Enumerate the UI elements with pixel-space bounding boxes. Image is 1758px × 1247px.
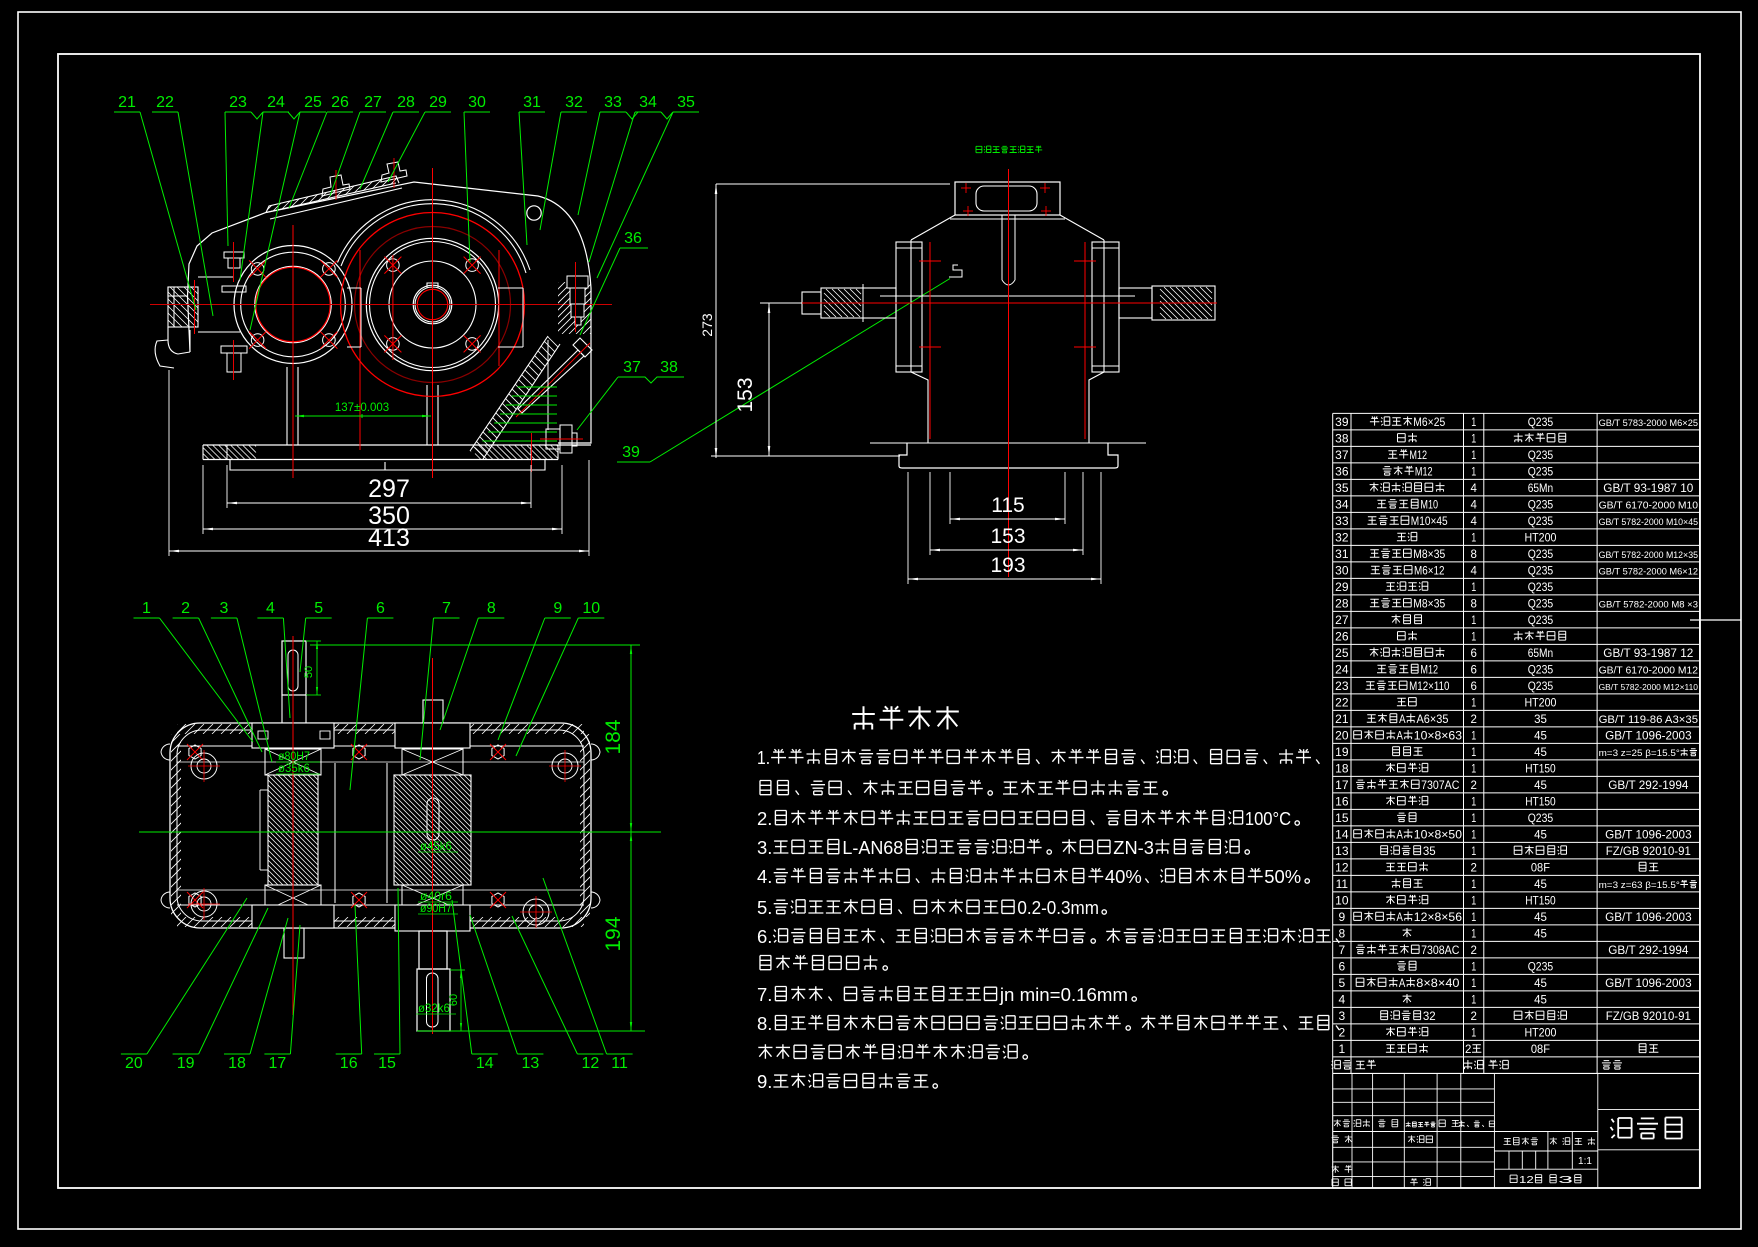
svg-text:29: 29: [1335, 580, 1349, 594]
svg-text:08F: 08F: [1531, 861, 1550, 874]
svg-text:GB/T 6170-2000 M10: GB/T 6170-2000 M10: [1599, 499, 1699, 511]
svg-text:Q235: Q235: [1528, 614, 1554, 627]
svg-text:Q235: Q235: [1528, 515, 1554, 528]
svg-text:193: 193: [990, 554, 1025, 577]
svg-text:GB/T 5782-2000 M8 ×3: GB/T 5782-2000 M8 ×3: [1599, 599, 1698, 609]
svg-text:28: 28: [397, 94, 415, 111]
svg-text:22: 22: [156, 94, 174, 111]
svg-text:26: 26: [331, 94, 349, 111]
svg-text:Q235: Q235: [1528, 680, 1554, 693]
svg-text:100°C: 100°C: [1245, 808, 1291, 829]
svg-text:14: 14: [1335, 827, 1349, 841]
svg-text:32: 32: [1423, 1010, 1436, 1023]
svg-text:3.: 3.: [757, 837, 772, 858]
svg-text:1: 1: [1471, 1026, 1476, 1039]
svg-text:L-AN68: L-AN68: [842, 837, 903, 858]
svg-text:3: 3: [1558, 1174, 1573, 1186]
svg-text:Q235: Q235: [1528, 465, 1554, 478]
svg-text:45: 45: [1534, 993, 1547, 1006]
svg-text:1: 1: [1471, 795, 1476, 808]
svg-text:3: 3: [1339, 1009, 1346, 1023]
svg-text:HT200: HT200: [1525, 696, 1557, 709]
svg-text:1: 1: [1471, 729, 1476, 742]
svg-text:A: A: [1399, 713, 1406, 726]
svg-text:1: 1: [1471, 977, 1476, 990]
svg-text:M12×110: M12×110: [1409, 680, 1449, 693]
svg-text:0.2-0.3mm: 0.2-0.3mm: [1017, 897, 1099, 918]
svg-text:2: 2: [1471, 713, 1477, 726]
svg-text:1: 1: [142, 600, 151, 617]
svg-text:2: 2: [1339, 1025, 1346, 1039]
svg-text:184: 184: [602, 719, 625, 754]
svg-text:1:1: 1:1: [1578, 1156, 1592, 1167]
svg-text:GB/T 5782-2000 M12×110: GB/T 5782-2000 M12×110: [1599, 682, 1699, 692]
svg-text:8: 8: [487, 600, 496, 617]
svg-text:ø35k6: ø35k6: [278, 762, 310, 775]
svg-text:297: 297: [368, 475, 410, 503]
svg-text:35: 35: [1534, 713, 1547, 726]
svg-text:1: 1: [1471, 911, 1476, 924]
svg-text:30: 30: [468, 94, 486, 111]
svg-text:7307AC: 7307AC: [1421, 779, 1459, 792]
svg-text:45: 45: [1534, 911, 1547, 924]
svg-text:1: 1: [1339, 1042, 1346, 1056]
svg-text:65Mn: 65Mn: [1528, 482, 1554, 495]
svg-text:10: 10: [1335, 893, 1349, 907]
svg-text:1: 1: [1471, 696, 1476, 709]
svg-text:194: 194: [602, 916, 625, 951]
svg-text:5: 5: [314, 600, 323, 617]
svg-text:28: 28: [1335, 596, 1349, 610]
svg-text:08F: 08F: [1531, 1043, 1550, 1056]
svg-text:45: 45: [1534, 729, 1547, 742]
svg-text:115: 115: [991, 494, 1024, 517]
svg-text:6: 6: [376, 600, 385, 617]
svg-text:413: 413: [368, 524, 410, 552]
svg-text:A6×35: A6×35: [1417, 713, 1449, 726]
svg-text:17: 17: [1335, 778, 1349, 792]
svg-text:1: 1: [1471, 762, 1476, 775]
svg-text:19: 19: [177, 1055, 195, 1072]
svg-text:25: 25: [304, 94, 322, 111]
svg-text:1: 1: [1471, 746, 1476, 759]
svg-text:40%: 40%: [1105, 866, 1142, 887]
svg-text:FZ/GB 92010-91: FZ/GB 92010-91: [1606, 845, 1691, 858]
svg-text:34: 34: [639, 94, 657, 111]
svg-text:Q235: Q235: [1528, 581, 1554, 594]
svg-text:7: 7: [442, 600, 451, 617]
svg-text:35: 35: [677, 94, 695, 111]
svg-text:GB/T 6170-2000 M12: GB/T 6170-2000 M12: [1599, 664, 1699, 676]
svg-text:6: 6: [1471, 680, 1477, 693]
svg-text:45: 45: [1534, 927, 1547, 940]
svg-text:273: 273: [699, 313, 715, 337]
svg-text:11: 11: [611, 1055, 628, 1072]
svg-text:ZN-3: ZN-3: [1113, 837, 1154, 858]
svg-text:A: A: [1397, 829, 1404, 841]
svg-text:19: 19: [1335, 745, 1349, 759]
svg-text:HT150: HT150: [1525, 762, 1556, 775]
svg-text:65Mn: 65Mn: [1528, 647, 1554, 660]
svg-text:GB/T 1096-2003: GB/T 1096-2003: [1605, 977, 1692, 990]
svg-text:7308AC: 7308AC: [1421, 944, 1459, 957]
svg-text:15: 15: [1335, 811, 1349, 825]
svg-text:6: 6: [1471, 647, 1477, 660]
svg-text:Q235: Q235: [1528, 597, 1554, 610]
svg-text:2: 2: [1465, 1043, 1471, 1056]
svg-text:2: 2: [1471, 779, 1477, 792]
svg-text:21: 21: [118, 94, 136, 111]
svg-text:Q235: Q235: [1528, 960, 1554, 973]
svg-text:10×8×63: 10×8×63: [1414, 730, 1462, 742]
svg-text:HT150: HT150: [1525, 795, 1556, 808]
svg-text:4.: 4.: [757, 866, 772, 887]
svg-text:ø32k6: ø32k6: [418, 1002, 450, 1015]
svg-text:Q235: Q235: [1528, 449, 1554, 462]
svg-text:34: 34: [1335, 497, 1349, 511]
svg-text:2: 2: [1471, 861, 1477, 874]
svg-text:M8×35: M8×35: [1413, 548, 1445, 561]
svg-text:36: 36: [1335, 464, 1349, 478]
svg-text:45: 45: [1534, 746, 1547, 759]
svg-text:4: 4: [1471, 515, 1478, 528]
svg-text:9: 9: [1339, 910, 1346, 924]
svg-text:35: 35: [1423, 845, 1436, 858]
svg-text:M12: M12: [1420, 663, 1438, 676]
svg-text:4: 4: [1339, 992, 1346, 1006]
svg-text:33: 33: [1335, 514, 1349, 528]
svg-text:Q235: Q235: [1528, 498, 1554, 511]
svg-text:29: 29: [429, 94, 447, 111]
svg-text:2: 2: [1471, 1010, 1477, 1023]
svg-text:A: A: [1399, 977, 1406, 990]
svg-text:9: 9: [553, 600, 562, 617]
svg-text:6: 6: [1471, 663, 1477, 676]
svg-text:39: 39: [622, 444, 640, 461]
svg-text:1: 1: [1471, 531, 1476, 544]
svg-text:13: 13: [1335, 844, 1349, 858]
svg-text:jn min=0.16mm: jn min=0.16mm: [999, 984, 1128, 1005]
svg-text:153: 153: [734, 377, 757, 412]
svg-text:38: 38: [660, 359, 678, 376]
svg-text:45: 45: [1534, 878, 1547, 891]
svg-text:45: 45: [1534, 977, 1547, 990]
svg-text:GB/T 93-1987 12: GB/T 93-1987 12: [1603, 647, 1693, 660]
svg-text:12: 12: [582, 1055, 600, 1072]
svg-text:25: 25: [1335, 646, 1349, 660]
svg-text:M6×12: M6×12: [1414, 564, 1445, 577]
svg-text:4: 4: [1471, 564, 1478, 577]
svg-text:GB/T 5783-2000 M6×25: GB/T 5783-2000 M6×25: [1599, 418, 1698, 428]
svg-text:1: 1: [1471, 927, 1476, 940]
svg-text:1: 1: [1471, 993, 1476, 1006]
svg-text:27: 27: [364, 94, 382, 111]
svg-text:26: 26: [1335, 629, 1349, 643]
svg-text:3: 3: [219, 600, 228, 617]
svg-text:2: 2: [181, 600, 190, 617]
svg-text:27: 27: [1335, 613, 1349, 627]
svg-text:45: 45: [1534, 828, 1547, 841]
svg-text:21: 21: [1335, 712, 1349, 726]
svg-text:M8×35: M8×35: [1413, 597, 1445, 610]
svg-text:Q235: Q235: [1528, 564, 1554, 577]
svg-text:8.: 8.: [757, 1013, 772, 1034]
svg-text:GB/T 1096-2003: GB/T 1096-2003: [1605, 828, 1692, 841]
svg-text:GB/T 292-1994: GB/T 292-1994: [1608, 944, 1689, 957]
svg-text:A: A: [1397, 730, 1404, 742]
svg-text:m=3 z=63 β=15.5°: m=3 z=63 β=15.5°: [1599, 880, 1680, 891]
svg-text:1: 1: [1471, 812, 1476, 825]
svg-text:1: 1: [1471, 960, 1476, 973]
svg-text:8: 8: [1471, 597, 1477, 610]
svg-text:15: 15: [378, 1055, 396, 1072]
svg-text:50: 50: [303, 666, 315, 678]
svg-text:31: 31: [523, 94, 541, 111]
svg-text:16: 16: [340, 1055, 358, 1072]
svg-text:M6×25: M6×25: [1413, 416, 1445, 429]
svg-text:137±0.003: 137±0.003: [335, 402, 389, 414]
svg-text:Q235: Q235: [1528, 548, 1554, 561]
svg-text:M10×45: M10×45: [1411, 515, 1448, 528]
svg-text:16: 16: [1335, 794, 1349, 808]
svg-text:153: 153: [990, 525, 1025, 548]
svg-text:18: 18: [228, 1055, 246, 1072]
svg-text:5: 5: [1339, 976, 1346, 990]
svg-text:45: 45: [1534, 779, 1547, 792]
svg-text:HT150: HT150: [1525, 894, 1556, 907]
svg-text:M12: M12: [1415, 465, 1433, 478]
svg-text:9.: 9.: [757, 1071, 772, 1092]
svg-text:A: A: [1397, 912, 1404, 924]
svg-text:23: 23: [229, 94, 247, 111]
svg-text:M12: M12: [1409, 449, 1427, 462]
svg-text:ø90H7: ø90H7: [420, 902, 452, 915]
svg-text:20: 20: [125, 1055, 143, 1072]
svg-text:HT200: HT200: [1525, 1026, 1557, 1039]
svg-text:7: 7: [1339, 943, 1346, 957]
svg-text:31: 31: [1335, 547, 1349, 561]
svg-text:1: 1: [1471, 878, 1476, 891]
svg-text:GB/T 1096-2003: GB/T 1096-2003: [1605, 729, 1692, 742]
svg-text:1: 1: [1471, 465, 1476, 478]
svg-text:1: 1: [1471, 614, 1476, 627]
svg-text:1: 1: [1471, 416, 1476, 429]
svg-text:1: 1: [1471, 828, 1476, 841]
svg-text:30: 30: [1335, 563, 1349, 577]
svg-text:37: 37: [623, 359, 641, 376]
svg-text:7.: 7.: [757, 984, 772, 1005]
svg-text:50%: 50%: [1264, 866, 1301, 887]
svg-text:10: 10: [582, 600, 600, 617]
svg-text:1: 1: [1471, 449, 1476, 462]
svg-text:32: 32: [1335, 530, 1349, 544]
svg-text:36: 36: [624, 230, 642, 247]
svg-text:Q235: Q235: [1528, 812, 1554, 825]
svg-text:12: 12: [1335, 860, 1349, 874]
svg-text:GB/T 5782-2000 M10×45: GB/T 5782-2000 M10×45: [1599, 517, 1698, 527]
svg-text:12×8×56: 12×8×56: [1414, 912, 1462, 924]
svg-text:38: 38: [1335, 431, 1349, 445]
svg-text:4: 4: [1471, 482, 1478, 495]
svg-text:1: 1: [1471, 845, 1476, 858]
svg-text:24: 24: [267, 94, 285, 111]
svg-text:FZ/GB 92010-91: FZ/GB 92010-91: [1606, 1010, 1691, 1023]
svg-text:8: 8: [1471, 548, 1477, 561]
svg-text:2: 2: [1471, 944, 1477, 957]
svg-text:Q235: Q235: [1528, 663, 1554, 676]
svg-text:20: 20: [1335, 728, 1349, 742]
svg-text:35: 35: [1335, 481, 1349, 495]
svg-text:23: 23: [1335, 679, 1349, 693]
svg-text:2.: 2.: [757, 808, 772, 829]
svg-text:33: 33: [604, 94, 622, 111]
svg-text:11: 11: [1336, 877, 1349, 891]
svg-text:14: 14: [476, 1055, 494, 1072]
svg-text:HT200: HT200: [1525, 531, 1557, 544]
svg-text:6.: 6.: [757, 926, 772, 947]
svg-text:37: 37: [1335, 448, 1349, 462]
svg-text:GB/T 5782-2000 M12×35: GB/T 5782-2000 M12×35: [1599, 550, 1698, 560]
svg-text:GB/T 292-1994: GB/T 292-1994: [1608, 779, 1689, 792]
svg-text:4: 4: [266, 600, 275, 617]
svg-text:Q235: Q235: [1528, 416, 1554, 429]
svg-text:GB/T 119-86 A3×35: GB/T 119-86 A3×35: [1599, 714, 1698, 726]
svg-text:24: 24: [1335, 662, 1349, 676]
svg-text:6: 6: [1339, 959, 1346, 973]
svg-text:1: 1: [1471, 581, 1476, 594]
svg-text:m=3 z=25 β=15.5°: m=3 z=25 β=15.5°: [1599, 748, 1680, 759]
svg-text:22: 22: [1335, 695, 1349, 709]
svg-text:17: 17: [269, 1055, 287, 1072]
svg-text:5.: 5.: [757, 897, 772, 918]
svg-text:4: 4: [1471, 498, 1478, 511]
svg-text:1: 1: [1471, 894, 1476, 907]
svg-text:GB/T 93-1987 10: GB/T 93-1987 10: [1603, 482, 1693, 495]
svg-text:8×8×40: 8×8×40: [1416, 977, 1459, 990]
svg-text:GB/T 1096-2003: GB/T 1096-2003: [1605, 911, 1692, 924]
svg-text:13: 13: [522, 1055, 540, 1072]
svg-text:1: 1: [1471, 630, 1476, 643]
svg-text:8: 8: [1339, 926, 1346, 940]
svg-text:GB/T 5782-2000 M6×12: GB/T 5782-2000 M6×12: [1599, 566, 1698, 576]
svg-text:12: 12: [1519, 1174, 1534, 1186]
svg-text:32: 32: [565, 94, 583, 111]
svg-text:1: 1: [1471, 432, 1476, 445]
svg-text:1.: 1.: [757, 747, 770, 768]
svg-text:18: 18: [1335, 761, 1349, 775]
svg-text:ø45k6: ø45k6: [420, 840, 452, 853]
svg-text:10×8×50: 10×8×50: [1414, 829, 1462, 841]
svg-text:39: 39: [1335, 415, 1349, 429]
svg-text:M10: M10: [1420, 498, 1438, 511]
